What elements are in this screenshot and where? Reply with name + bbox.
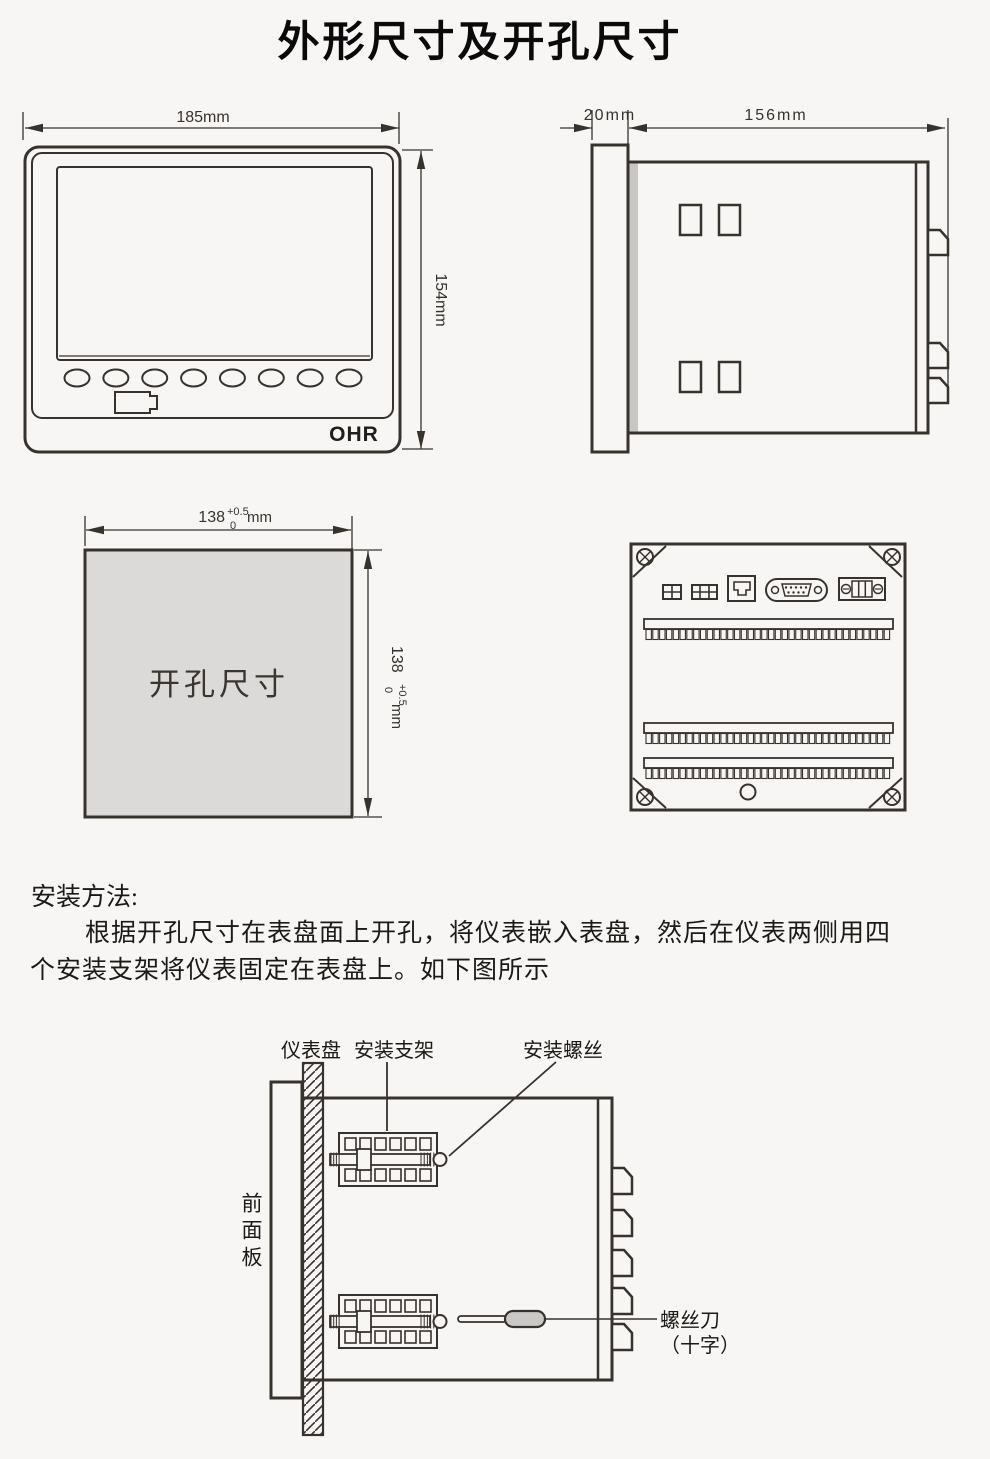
latch-tab — [612, 1324, 632, 1350]
terminal-cell — [680, 630, 685, 640]
terminal-bar — [644, 758, 893, 768]
dimension-arrowhead — [364, 798, 372, 816]
terminal-cell — [884, 734, 889, 744]
terminal-cell — [653, 734, 658, 744]
terminal-bar — [644, 619, 893, 629]
side-front-bezel — [592, 145, 628, 452]
terminal-cell — [850, 769, 855, 779]
terminal-cell — [714, 630, 719, 640]
terminal-cell — [843, 769, 848, 779]
terminal-cell — [816, 734, 821, 744]
terminal-cell — [687, 769, 692, 779]
front-width-dimension: 185mm — [176, 109, 229, 126]
latch-tab — [612, 1210, 632, 1236]
terminal-cell — [823, 630, 828, 640]
connector-3pin — [692, 585, 717, 599]
terminal-cell — [816, 769, 821, 779]
terminal-cell — [803, 630, 808, 640]
mounting-panel-hatched — [303, 1063, 323, 1435]
terminal-cell — [782, 734, 787, 744]
terminal-cell — [694, 630, 699, 640]
side-body — [628, 162, 928, 433]
terminal-cell — [864, 630, 869, 640]
dimension-arrowhead — [417, 431, 425, 449]
terminal-cell — [700, 769, 705, 779]
terminal-cell — [864, 769, 869, 779]
latch-tab — [928, 378, 948, 403]
terminal-cell — [694, 769, 699, 779]
terminal-cell — [830, 769, 835, 779]
install-text-line2: 个安装支架将仪表固定在表盘上。如下图所示 — [30, 950, 550, 986]
bracket-label: 安装支架 — [354, 1039, 434, 1062]
terminal-cell — [741, 734, 746, 744]
terminal-cell — [653, 630, 658, 640]
ground-hole — [741, 785, 756, 800]
terminal-cell — [837, 734, 842, 744]
back-view-drawing — [631, 544, 905, 810]
cutout-width-tol-plus: +0.5 — [227, 506, 249, 518]
terminal-cell — [877, 734, 882, 744]
terminal-cell — [673, 734, 678, 744]
terminal-cell — [707, 630, 712, 640]
bracket-nut — [357, 1149, 371, 1170]
terminal-cell — [734, 630, 739, 640]
vent-slot — [680, 205, 701, 235]
terminal-cell — [864, 734, 869, 744]
terminal-cell — [823, 734, 828, 744]
terminal-cell — [755, 769, 760, 779]
side-view-drawing — [560, 110, 948, 452]
terminal-cell — [775, 769, 780, 779]
terminal-cell — [782, 769, 787, 779]
terminal-cell — [666, 630, 671, 640]
terminal-cell — [673, 630, 678, 640]
serial-pins — [785, 586, 807, 593]
corner-screw — [884, 549, 900, 565]
terminal-cell — [809, 769, 814, 779]
terminal-cell — [803, 769, 808, 779]
terminal-cell — [857, 734, 862, 744]
terminal-cell — [884, 630, 889, 640]
terminal-cell — [837, 769, 842, 779]
terminal-cell — [871, 734, 876, 744]
cutout-width-tol-zero: 0 — [230, 520, 236, 532]
terminal-cell — [660, 769, 665, 779]
front-height-dimension: 154mm — [432, 273, 449, 326]
terminal-cell — [762, 769, 767, 779]
terminal-cell — [850, 630, 855, 640]
dimension-arrowhead — [417, 151, 425, 169]
terminal-cell — [823, 769, 828, 779]
dimension-arrowhead — [25, 124, 43, 132]
terminal-cell — [721, 734, 726, 744]
terminal-cell — [769, 630, 774, 640]
install-text-line1: 根据开孔尺寸在表盘面上开孔，将仪表嵌入表盘，然后在仪表两侧用四 — [85, 913, 891, 949]
terminal-cell — [809, 734, 814, 744]
bracket-screw-rod — [330, 1154, 430, 1165]
terminal-cell — [857, 769, 862, 779]
terminal-cell — [680, 769, 685, 779]
vent-slot — [680, 362, 701, 392]
screwdriver-label: 螺丝刀 — [660, 1309, 720, 1332]
side-latch-tabs — [928, 230, 948, 403]
terminal-cell — [816, 630, 821, 640]
terminal-cell — [762, 630, 767, 640]
side-vent-slots — [680, 205, 740, 392]
terminal-cell — [707, 769, 712, 779]
terminal-strips — [644, 619, 893, 779]
corner-screw — [884, 789, 900, 805]
terminal-cell — [714, 769, 719, 779]
terminal-cell — [884, 769, 889, 779]
front-panel-label: 前面板 — [236, 1192, 266, 1273]
terminal-cell — [734, 734, 739, 744]
terminal-cell — [877, 630, 882, 640]
terminal-cell — [673, 769, 678, 779]
cutout-width-value: 138 — [198, 509, 225, 526]
install-latch-tabs — [612, 1168, 632, 1350]
terminal-cell — [728, 630, 733, 640]
terminal-cell — [748, 769, 753, 779]
terminal-cell — [687, 630, 692, 640]
bracket-nut — [357, 1311, 371, 1332]
terminal-cell — [680, 734, 685, 744]
terminal-cell — [748, 734, 753, 744]
ethernet-port-icon — [728, 576, 755, 601]
cutout-height-value: 138 — [388, 646, 405, 673]
latch-tab — [928, 230, 948, 255]
bracket-screw-rod — [330, 1316, 430, 1327]
brand-logo: OHR — [329, 423, 379, 446]
latch-tab — [612, 1288, 632, 1314]
dimension-arrowhead — [381, 124, 399, 132]
terminal-cell — [796, 769, 801, 779]
terminal-cell — [721, 769, 726, 779]
terminal-cell — [789, 769, 794, 779]
install-heading: 安装方法: — [31, 877, 138, 913]
terminal-cell — [782, 630, 787, 640]
mounting-screw-head — [434, 1315, 447, 1328]
latch-tab — [928, 343, 948, 368]
latch-tab — [612, 1250, 632, 1276]
cutout-height-unit: mm — [388, 704, 405, 729]
terminal-cell — [694, 734, 699, 744]
terminal-cell — [857, 630, 862, 640]
terminal-cell — [796, 630, 801, 640]
terminal-cell — [850, 734, 855, 744]
terminal-cell — [666, 734, 671, 744]
terminal-cell — [700, 734, 705, 744]
terminal-bar — [644, 723, 893, 733]
terminal-cell — [762, 734, 767, 744]
technical-drawing: 185mm 154mm OHR 20mm 156mm — [0, 0, 990, 1459]
terminal-cell — [734, 769, 739, 779]
front-view-drawing — [23, 112, 433, 452]
front-outer-case — [25, 147, 400, 452]
vent-slot — [719, 205, 740, 235]
screw-label: 安装螺丝 — [523, 1039, 603, 1062]
cutout-label: 开孔尺寸 — [149, 667, 289, 702]
dimension-arrowhead — [86, 526, 104, 534]
terminal-cell — [714, 734, 719, 744]
side-depth-dimension: 156mm — [744, 107, 807, 124]
terminal-cell — [871, 769, 876, 779]
terminal-cell — [755, 630, 760, 640]
panel-label: 仪表盘 — [281, 1039, 341, 1062]
terminal-cell — [646, 734, 651, 744]
terminal-cell — [789, 734, 794, 744]
terminal-cell — [803, 734, 808, 744]
terminal-cell — [871, 630, 876, 640]
cutout-height-tol-zero: 0 — [382, 687, 394, 693]
manual-page: 外形尺寸及开孔尺寸 185mm — [0, 0, 990, 1459]
terminal-cell — [769, 769, 774, 779]
terminal-cell — [769, 734, 774, 744]
dimension-arrowhead — [364, 551, 372, 569]
terminal-cell — [775, 734, 780, 744]
dimension-arrowhead — [629, 124, 647, 132]
side-bezel-dimension: 20mm — [584, 107, 636, 124]
corner-screw — [637, 789, 653, 805]
terminal-cell — [707, 734, 712, 744]
terminal-cell — [700, 630, 705, 640]
terminal-cell — [755, 734, 760, 744]
serial-port-icon — [766, 579, 827, 601]
mounting-screw-head — [434, 1153, 447, 1166]
corner-screw — [637, 549, 653, 565]
terminal-cell — [837, 630, 842, 640]
terminal-cell — [789, 630, 794, 640]
terminal-cell — [741, 630, 746, 640]
terminal-cell — [843, 630, 848, 640]
mounting-bracket — [330, 1295, 447, 1348]
terminal-cell — [653, 769, 658, 779]
terminal-cell — [843, 734, 848, 744]
dimension-arrowhead — [333, 526, 351, 534]
vent-slot — [719, 362, 740, 392]
bezel-shadow — [629, 163, 638, 432]
screwdriver-type-label: （十字） — [660, 1334, 740, 1357]
terminal-cell — [830, 630, 835, 640]
terminal-cell — [741, 769, 746, 779]
terminal-cell — [687, 734, 692, 744]
dimension-arrowhead — [927, 124, 945, 132]
terminal-cell — [728, 734, 733, 744]
terminal-cell — [660, 734, 665, 744]
corner-screws — [637, 549, 900, 805]
terminal-cell — [728, 769, 733, 779]
terminal-cell — [775, 630, 780, 640]
cutout-width-unit: mm — [247, 509, 272, 526]
terminal-cell — [646, 630, 651, 640]
terminal-cell — [830, 734, 835, 744]
power-terminal-icon — [839, 578, 885, 600]
mounting-bracket — [330, 1133, 447, 1186]
terminal-cell — [721, 630, 726, 640]
connector-2pin — [663, 585, 681, 599]
install-front-panel — [271, 1082, 302, 1398]
terminal-cell — [809, 630, 814, 640]
terminal-cell — [796, 734, 801, 744]
dimension-arrowhead — [574, 124, 592, 132]
terminal-cell — [660, 630, 665, 640]
terminal-cell — [877, 769, 882, 779]
terminal-cell — [666, 769, 671, 779]
latch-tab — [612, 1168, 632, 1194]
cutout-height-tol-plus: +0.5 — [396, 684, 408, 706]
install-diagram — [271, 1062, 657, 1435]
terminal-cell — [748, 630, 753, 640]
terminal-cell — [646, 769, 651, 779]
